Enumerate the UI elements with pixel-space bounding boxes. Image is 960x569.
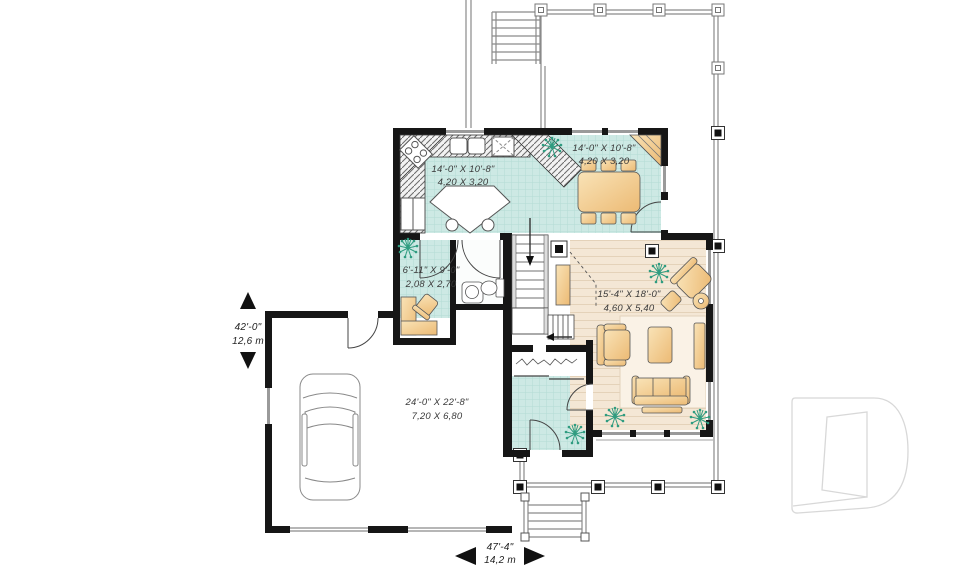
dining-label-metric: 4,20 X 3,20 [579,156,630,167]
garage-label-metric: 7,20 X 6,80 [412,411,463,422]
garage-label-imperial: 24'-0" X 22'-8" [404,397,468,408]
floor-plan-drawing: 14'-0" X 10'-8" 4,20 X 3,20 14'-0" X 10'… [0,0,960,569]
porch-bottom-rail [520,483,718,487]
living-label-imperial: 15'-4" X 18'-0" [597,289,660,300]
living-window-2 [708,382,711,420]
arrow-up-icon [240,292,256,309]
refrigerator [401,198,425,230]
garage-window [267,388,270,424]
drummond-logo [792,398,908,513]
roof-line [466,0,471,128]
tv-console [694,323,705,369]
floor-plan: 14'-0" X 10'-8" 4,20 X 3,20 14'-0" X 10'… [0,0,960,569]
toilet-bowl [481,281,497,295]
deck-top-rail [541,10,718,14]
sink-bowl [466,286,479,299]
office-label-imperial: 6'-11" X 9'-0" [403,265,460,276]
depth-imperial: 42'-0" [235,322,262,333]
depth-metric: 12,6 m [232,336,264,347]
desk-bottom [401,321,437,335]
kitchen-label-imperial: 14'-0" X 10'-8" [431,164,494,175]
dining-table [578,160,640,224]
living-front-window-3 [670,432,700,435]
dining-side-window [663,166,666,192]
logo-door [822,412,867,497]
width-dimension: 47'-4" 14,2 m [455,542,545,566]
coffee-table [648,327,672,363]
arrow-right-icon [524,547,545,565]
width-metric: 14,2 m [484,555,516,566]
width-imperial: 47'-4" [487,542,514,553]
logo-tail [793,497,867,506]
office-label-metric: 2,08 X 2,70 [405,279,457,290]
living-label-metric: 4,60 X 5,40 [604,303,655,314]
dishwasher [492,137,514,156]
porch-steps [524,495,586,537]
logo-outer [792,398,908,513]
sofa-table [642,407,682,413]
depth-dimension: 42'-0" 12,6 m [232,292,264,369]
arrow-down-icon [240,352,256,369]
kitchen-window [446,130,484,133]
living-front-window-2 [636,432,664,435]
arrow-left-icon [455,547,476,565]
car [300,374,360,500]
deck-left-rail [541,10,545,128]
basement-stairs [512,308,574,341]
deck-stairs [492,12,540,64]
dining-window-2 [608,130,638,133]
dining-window-1 [572,130,602,133]
armchair-left [597,324,630,366]
hall-cabinet [556,265,570,305]
dining-label-imperial: 14'-0" X 10'-8" [572,143,635,154]
kitchen-label-metric: 4,20 X 3,20 [438,177,489,188]
living-front-window-1 [602,432,630,435]
